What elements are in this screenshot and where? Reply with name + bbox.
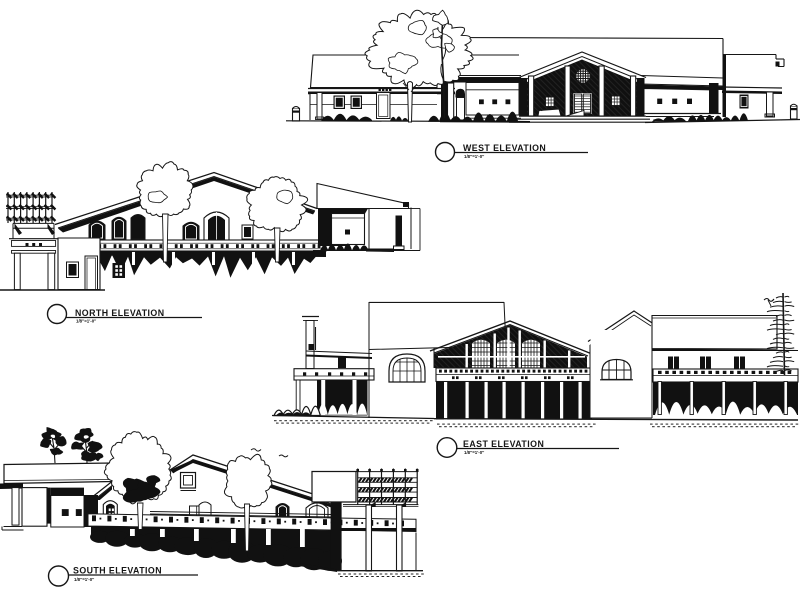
svg-text:1/8″=1′-0″: 1/8″=1′-0″ [76, 319, 97, 324]
svg-text:WEST ELEVATION: WEST ELEVATION [463, 143, 546, 153]
svg-text:1/8″=1′-0″: 1/8″=1′-0″ [74, 577, 95, 582]
svg-text:1/8″=1′-0″: 1/8″=1′-0″ [464, 450, 485, 455]
svg-text:1/8″=1′-0″: 1/8″=1′-0″ [464, 154, 485, 159]
svg-text:EAST ELEVATION: EAST ELEVATION [463, 439, 544, 449]
svg-text:SOUTH ELEVATION: SOUTH ELEVATION [73, 566, 162, 576]
svg-text:NORTH ELEVATION: NORTH ELEVATION [75, 308, 165, 318]
